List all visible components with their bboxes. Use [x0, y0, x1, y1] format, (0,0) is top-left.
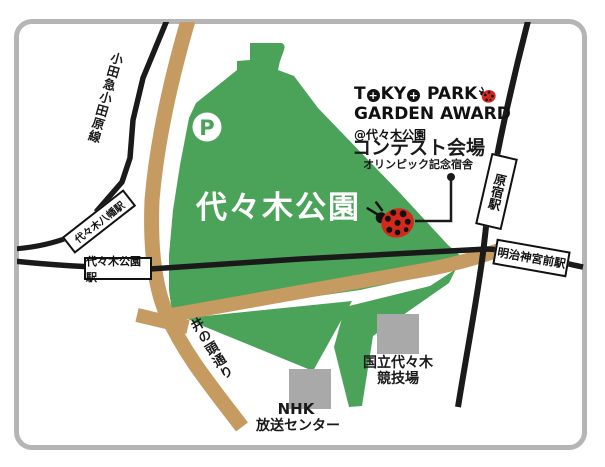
station-yoyogi-koen: 代々木公園駅	[84, 257, 152, 280]
logo-line1: T+KY+ PARK	[354, 84, 514, 104]
logo-ladybug-icon	[479, 86, 498, 103]
logo-line2: GARDEN AWARD	[354, 104, 514, 124]
stadium-label-line1: 国立代々木	[358, 355, 438, 371]
logo-o-glyph: +	[367, 89, 380, 102]
national-stadium-label: 国立代々木 競技場	[358, 355, 438, 387]
event-logo: T+KY+ PARK GARDEN AWARD @代々木公園	[354, 84, 514, 143]
station-yoyogi-koen-label: 代々木公園駅	[86, 253, 150, 285]
park-name-label: 代々木公園	[196, 191, 361, 227]
callout-line	[415, 179, 451, 221]
logo-title-text: T+KY+ PARK	[354, 84, 477, 104]
nhk-label-line1: NHK	[256, 401, 336, 418]
nhk-label-line2: 放送センター	[256, 418, 336, 434]
nhk-center-label: NHK 放送センター	[256, 401, 336, 434]
stadium-label-line2: 競技場	[358, 371, 438, 387]
logo-o-glyph: +	[407, 89, 420, 102]
building-stadium	[377, 314, 419, 354]
map: P T+KY+ PARK	[0, 0, 605, 467]
venue-title: コンテスト会場	[352, 138, 485, 160]
parking-icon: P	[193, 113, 222, 142]
station-harajuku-label: 原宿駅	[483, 171, 510, 212]
venue-subtitle: オリンピック記念宿舎	[363, 159, 473, 172]
svg-text:P: P	[199, 116, 214, 140]
